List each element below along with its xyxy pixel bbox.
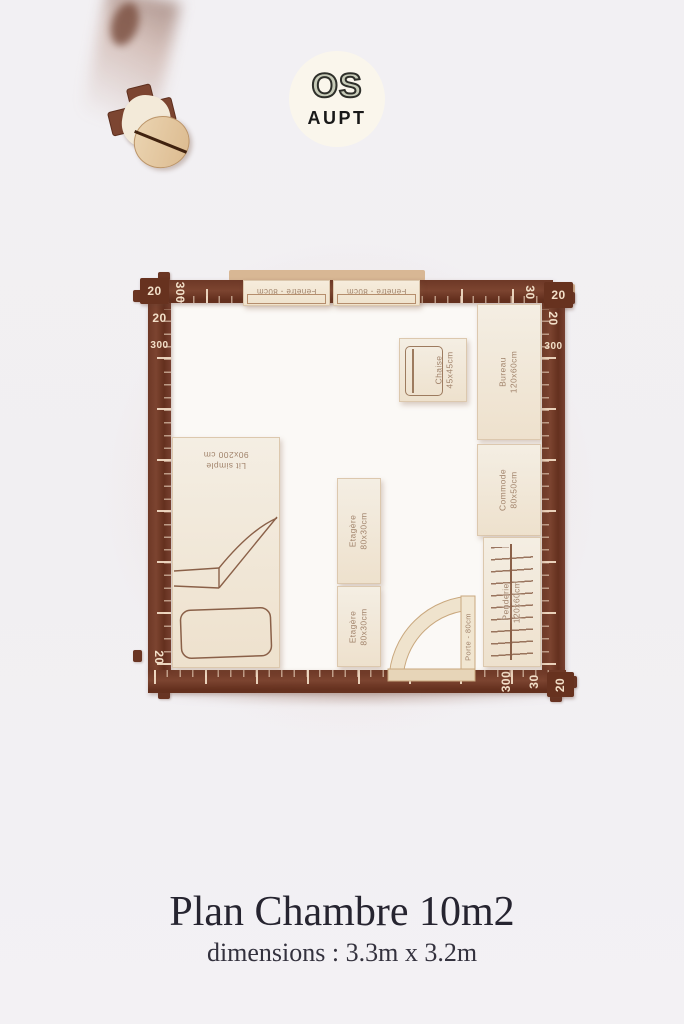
ruler-number: 20 <box>147 285 161 297</box>
tick-marks <box>542 309 565 665</box>
bed-piece: Lit simple 90x200 cm <box>172 437 280 668</box>
ruler-corner-top-right: 20 <box>544 282 573 308</box>
ruler-number: 20 <box>542 307 565 330</box>
tick-marks <box>148 309 171 665</box>
brand-badge: OS AUPT <box>289 51 385 147</box>
shelf-label: Etagère 80x30cm <box>348 512 371 549</box>
shelf-piece: Etagère 80x30cm <box>337 586 381 667</box>
caption-subtitle: dimensions : 3.3m x 3.2m <box>0 938 684 968</box>
ruler-number: 300 <box>148 334 171 357</box>
ruler-number: 20 <box>148 306 171 329</box>
jigsaw-tab <box>133 650 142 662</box>
window-sill-drawing <box>247 294 326 304</box>
shelf-piece: Etagère 80x30cm <box>337 478 381 584</box>
product-photo: OS AUPT 20 300 30 20 20 300 20 20 300 30… <box>0 0 684 1024</box>
dresser-label: Commode 80x50cm <box>498 469 521 511</box>
door-label: Porte - 80cm <box>464 613 473 661</box>
brand-name: AUPT <box>308 108 367 129</box>
dresser-piece: Commode 80x50cm <box>477 444 541 536</box>
desk-piece: Bureau 120x60cm <box>477 304 541 440</box>
chair-label: Chaise 45x45cm <box>433 351 456 388</box>
ruler-wall-left <box>148 303 171 671</box>
bed-label: Lit simple 90x200 cm <box>173 448 279 471</box>
ruler-number: 300 <box>494 670 517 693</box>
ruler-wall-right <box>542 303 565 671</box>
ruler-number: 300 <box>542 335 565 358</box>
ruler-number: 30 <box>522 670 545 693</box>
ruler-corner-top-left: 20 <box>140 278 169 304</box>
window-piece: Fenêtre - 80cm <box>333 280 420 306</box>
bed-bedding-drawing <box>173 513 281 665</box>
wardrobe-label: Penderie 120x60cm <box>501 581 524 623</box>
ruler-corner-bottom-right: 20 <box>547 672 574 697</box>
desk-label: Bureau 120x60cm <box>498 351 521 393</box>
ruler-number: 20 <box>551 289 565 301</box>
ruler-number: 20 <box>148 646 171 669</box>
shelf-label: Etagère 80x30cm <box>348 608 371 645</box>
wardrobe-piece: Penderie 120x60cm <box>483 537 541 667</box>
window-sill-drawing <box>337 294 416 304</box>
caption-title: Plan Chambre 10m2 <box>0 888 684 936</box>
ruler-number: 300 <box>169 281 192 304</box>
ruler-number: 20 <box>554 677 566 691</box>
window-piece: Fenêtre - 80cm <box>243 280 330 306</box>
door-piece: Porte - 80cm <box>384 594 478 683</box>
chair-piece: Chaise 45x45cm <box>399 338 467 402</box>
brand-initials: OS <box>311 69 362 103</box>
ruler-number: 30 <box>519 281 542 304</box>
